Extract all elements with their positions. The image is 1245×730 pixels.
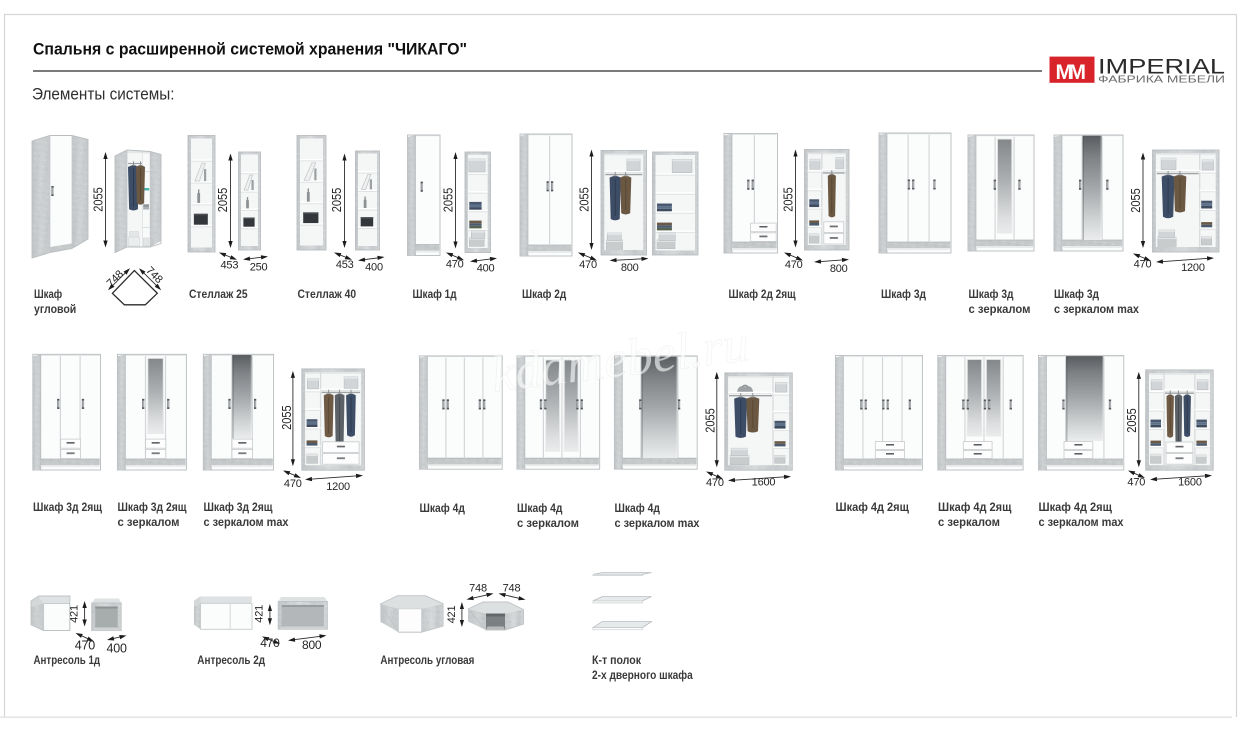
svg-text:Шкаф 4д 2ящ: Шкаф 4д 2ящ [836,500,910,514]
svg-text:Антресоль угловая: Антресоль угловая [380,653,474,667]
svg-text:M: M [1069,61,1087,84]
svg-text:Шкаф 2д 2ящ: Шкаф 2д 2ящ [729,287,797,301]
svg-text:748: 748 [469,583,487,595]
svg-text:800: 800 [621,262,639,274]
svg-text:2055: 2055 [90,187,105,212]
svg-text:2055: 2055 [440,188,455,213]
svg-text:2055: 2055 [780,187,795,212]
svg-text:с зеркалом max: с зеркалом max [615,516,700,530]
svg-text:2055: 2055 [702,408,717,433]
svg-text:800: 800 [830,263,848,275]
svg-text:2055: 2055 [329,188,344,213]
svg-text:800: 800 [302,638,322,652]
svg-text:Шкаф 2д: Шкаф 2д [522,287,566,301]
svg-text:Шкаф 3д 2ящ: Шкаф 3д 2ящ [118,500,187,514]
svg-text:2055: 2055 [279,405,294,430]
svg-text:Шкаф 4д 2ящ: Шкаф 4д 2ящ [1039,500,1113,514]
svg-text:470: 470 [1134,259,1152,271]
svg-text:с зеркалом: с зеркалом [969,302,1031,316]
svg-text:421: 421 [446,606,458,624]
svg-text:Шкаф 3д: Шкаф 3д [1054,287,1099,301]
svg-text:с зеркалом max: с зеркалом max [204,515,289,529]
svg-text:Антресоль 2д: Антресоль 2д [197,653,265,667]
svg-text:с зеркалом max: с зеркалом max [1054,302,1139,316]
svg-text:с зеркалом: с зеркалом [938,515,1000,529]
svg-text:400: 400 [365,261,383,273]
svg-text:Шкаф 3д: Шкаф 3д [881,287,926,301]
svg-text:с зеркалом max: с зеркалом max [1039,515,1124,529]
svg-text:Стеллаж 40: Стеллаж 40 [298,287,357,301]
svg-text:угловой: угловой [34,302,76,316]
svg-text:1600: 1600 [1178,477,1202,489]
svg-text:470: 470 [785,259,803,271]
svg-text:1600: 1600 [752,477,776,489]
svg-text:1200: 1200 [1181,262,1205,274]
svg-text:453: 453 [336,259,354,271]
svg-text:470: 470 [260,636,280,650]
svg-text:Шкаф 3д 2ящ: Шкаф 3д 2ящ [204,500,273,514]
svg-text:Шкаф 4д 2ящ: Шкаф 4д 2ящ [938,500,1012,514]
svg-text:2055: 2055 [1128,188,1143,213]
svg-text:748: 748 [503,583,521,595]
svg-text:Шкаф 4д: Шкаф 4д [420,501,466,515]
svg-text:Спальня с расширенной системой: Спальня с расширенной системой хранения … [33,40,467,59]
svg-text:Антресоль 1д: Антресоль 1д [34,653,101,667]
svg-text:Шкаф 4д: Шкаф 4д [615,501,661,515]
svg-text:470: 470 [706,477,724,489]
svg-text:470: 470 [446,259,464,271]
svg-text:470: 470 [1127,477,1145,489]
svg-text:453: 453 [221,259,239,271]
svg-text:421: 421 [69,605,81,623]
svg-text:470: 470 [75,638,96,652]
svg-text:2-х дверного шкафа: 2-х дверного шкафа [592,668,693,682]
svg-text:2055: 2055 [215,188,230,213]
svg-text:Шкаф 1д: Шкаф 1д [413,287,457,301]
svg-text:с зеркалом: с зеркалом [118,515,180,529]
svg-text:Шкаф 3д: Шкаф 3д [969,287,1014,301]
svg-text:421: 421 [254,605,266,623]
svg-text:Шкаф: Шкаф [34,287,62,301]
svg-text:2055: 2055 [576,187,591,212]
svg-text:Элементы системы:: Элементы системы: [32,85,175,104]
svg-text:1200: 1200 [326,481,350,493]
svg-text:К-т полок: К-т полок [592,653,642,667]
svg-text:Стеллаж 25: Стеллаж 25 [189,287,248,301]
svg-text:470: 470 [579,259,597,271]
svg-text:Шкаф 3д 2ящ: Шкаф 3д 2ящ [33,500,102,514]
svg-text:ФАБРИКА МЕБЕЛИ: ФАБРИКА МЕБЕЛИ [1098,75,1225,86]
svg-text:400: 400 [477,263,495,275]
svg-text:250: 250 [250,261,268,273]
svg-text:Шкаф 4д: Шкаф 4д [517,501,563,515]
svg-text:400: 400 [106,641,127,655]
svg-text:470: 470 [284,478,302,490]
svg-text:2055: 2055 [1124,408,1139,433]
svg-text:с зеркалом: с зеркалом [517,516,579,530]
